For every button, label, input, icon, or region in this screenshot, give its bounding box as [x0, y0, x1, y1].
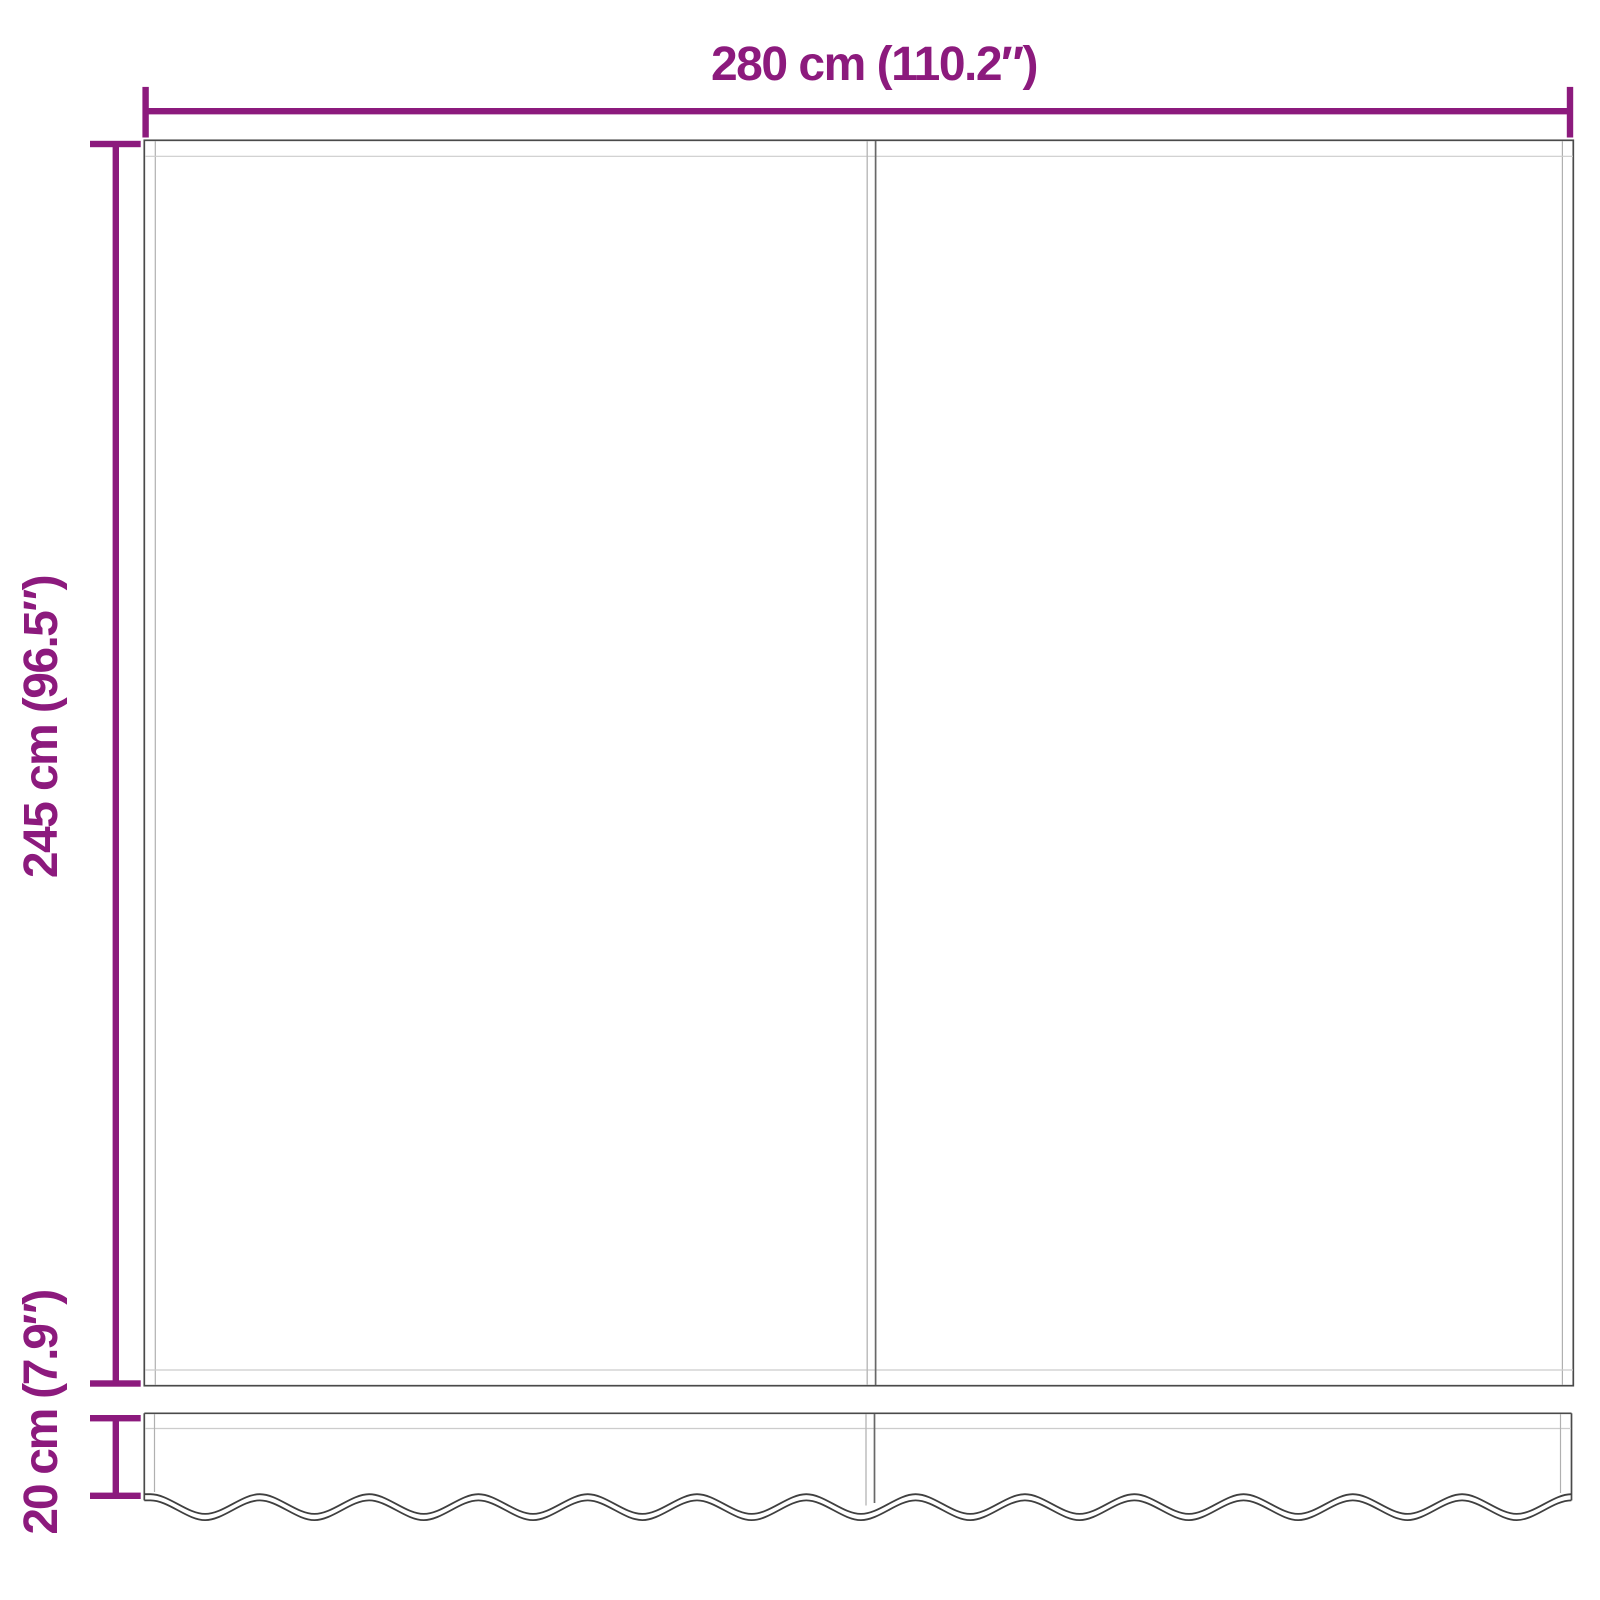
svg-text:20 cm (7.9″): 20 cm (7.9″) [15, 1291, 68, 1535]
svg-text:245 cm (96.5″): 245 cm (96.5″) [15, 576, 68, 878]
svg-text:280 cm (110.2″): 280 cm (110.2″) [711, 38, 1037, 91]
